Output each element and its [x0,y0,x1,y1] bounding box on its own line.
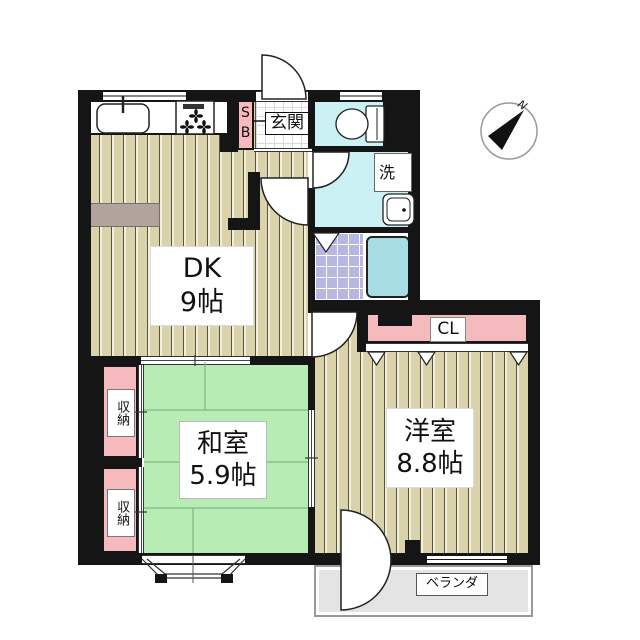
storage-upper-sliding-door [138,365,144,458]
toilet-window [340,91,382,101]
veranda-text: ベランダ [426,576,478,592]
dk-size: 9帖 [180,286,224,320]
wall-bath-bottom [308,300,540,313]
wall-japanese-western-bottom [308,507,315,555]
wall-right-wing [528,301,540,565]
entrance-label: 玄関 [265,112,309,135]
closet-label: CL [430,317,466,342]
wall-cl-protrusion [378,313,412,326]
storage-upper-label: 収納 [107,389,135,437]
entrance-door-opening [256,91,308,102]
floorplan-canvas: N DK 9帖 和室 5.9帖 洋室 8.8帖 玄関 S B 洗 CL 収納 収… [0,0,640,640]
wall-storage-divider [100,458,142,467]
compass: N [481,98,537,159]
western-room-size: 8.8帖 [396,448,463,481]
wall-kitchen-stub [220,133,238,152]
entrance-text: 玄関 [270,113,304,134]
bathtub [366,236,410,298]
shoe-box-label: S B [238,102,253,146]
western-room-name: 洋室 [404,416,456,449]
wall-vert-washroom [308,188,315,302]
veranda-label: ベランダ [416,573,488,596]
toilet-room-floor [315,102,383,146]
dk-label: DK 9帖 [150,246,254,326]
wall-washroom-bath [308,227,413,233]
compass-circle [481,103,537,159]
laundry-text: 洗 [379,163,395,183]
wall-toilet-washroom [308,146,412,152]
bay-window-opening [142,555,245,564]
kitchen-window [103,91,186,101]
dk-name: DK [183,252,222,286]
japanese-room-size: 5.9帖 [189,460,256,493]
wall-left [78,90,91,565]
storage-lower-sliding-door [138,467,144,553]
bathroom-floor [315,233,363,300]
closet-door-track [366,343,528,352]
western-room-label: 洋室 8.8帖 [386,408,474,488]
wall-duct-corner [383,90,420,150]
storage-upper-text: 収納 [113,400,129,426]
storage-lower-label: 収納 [107,489,135,537]
wall-western-pillar [405,540,420,554]
storage-lower-text: 収納 [113,500,129,526]
compass-north-label: N [515,98,529,113]
japanese-room-name: 和室 [197,428,249,461]
kitchen-counter [90,100,237,135]
dk-japanese-sliding-door [141,356,250,365]
dk-side-counter [90,203,160,227]
wall-dk-japanese-right [250,356,315,365]
compass-needle [488,110,524,150]
japanese-room-label: 和室 5.9帖 [179,421,267,499]
entrance-step-line [254,148,312,152]
closet-text: CL [437,319,458,340]
wall-dk-japanese-left [83,356,141,365]
shoe-box-line1: S [241,104,250,124]
wall-vert-toilet [308,92,315,152]
wall-cl-post [357,313,366,352]
western-room-window [427,555,507,564]
wall-hall-l-horizontal [228,218,260,230]
laundry-label: 洗 [374,153,412,192]
shoe-box-line2: B [241,124,251,144]
japanese-western-sliding-door [308,410,315,507]
veranda-door-opening [341,555,391,564]
